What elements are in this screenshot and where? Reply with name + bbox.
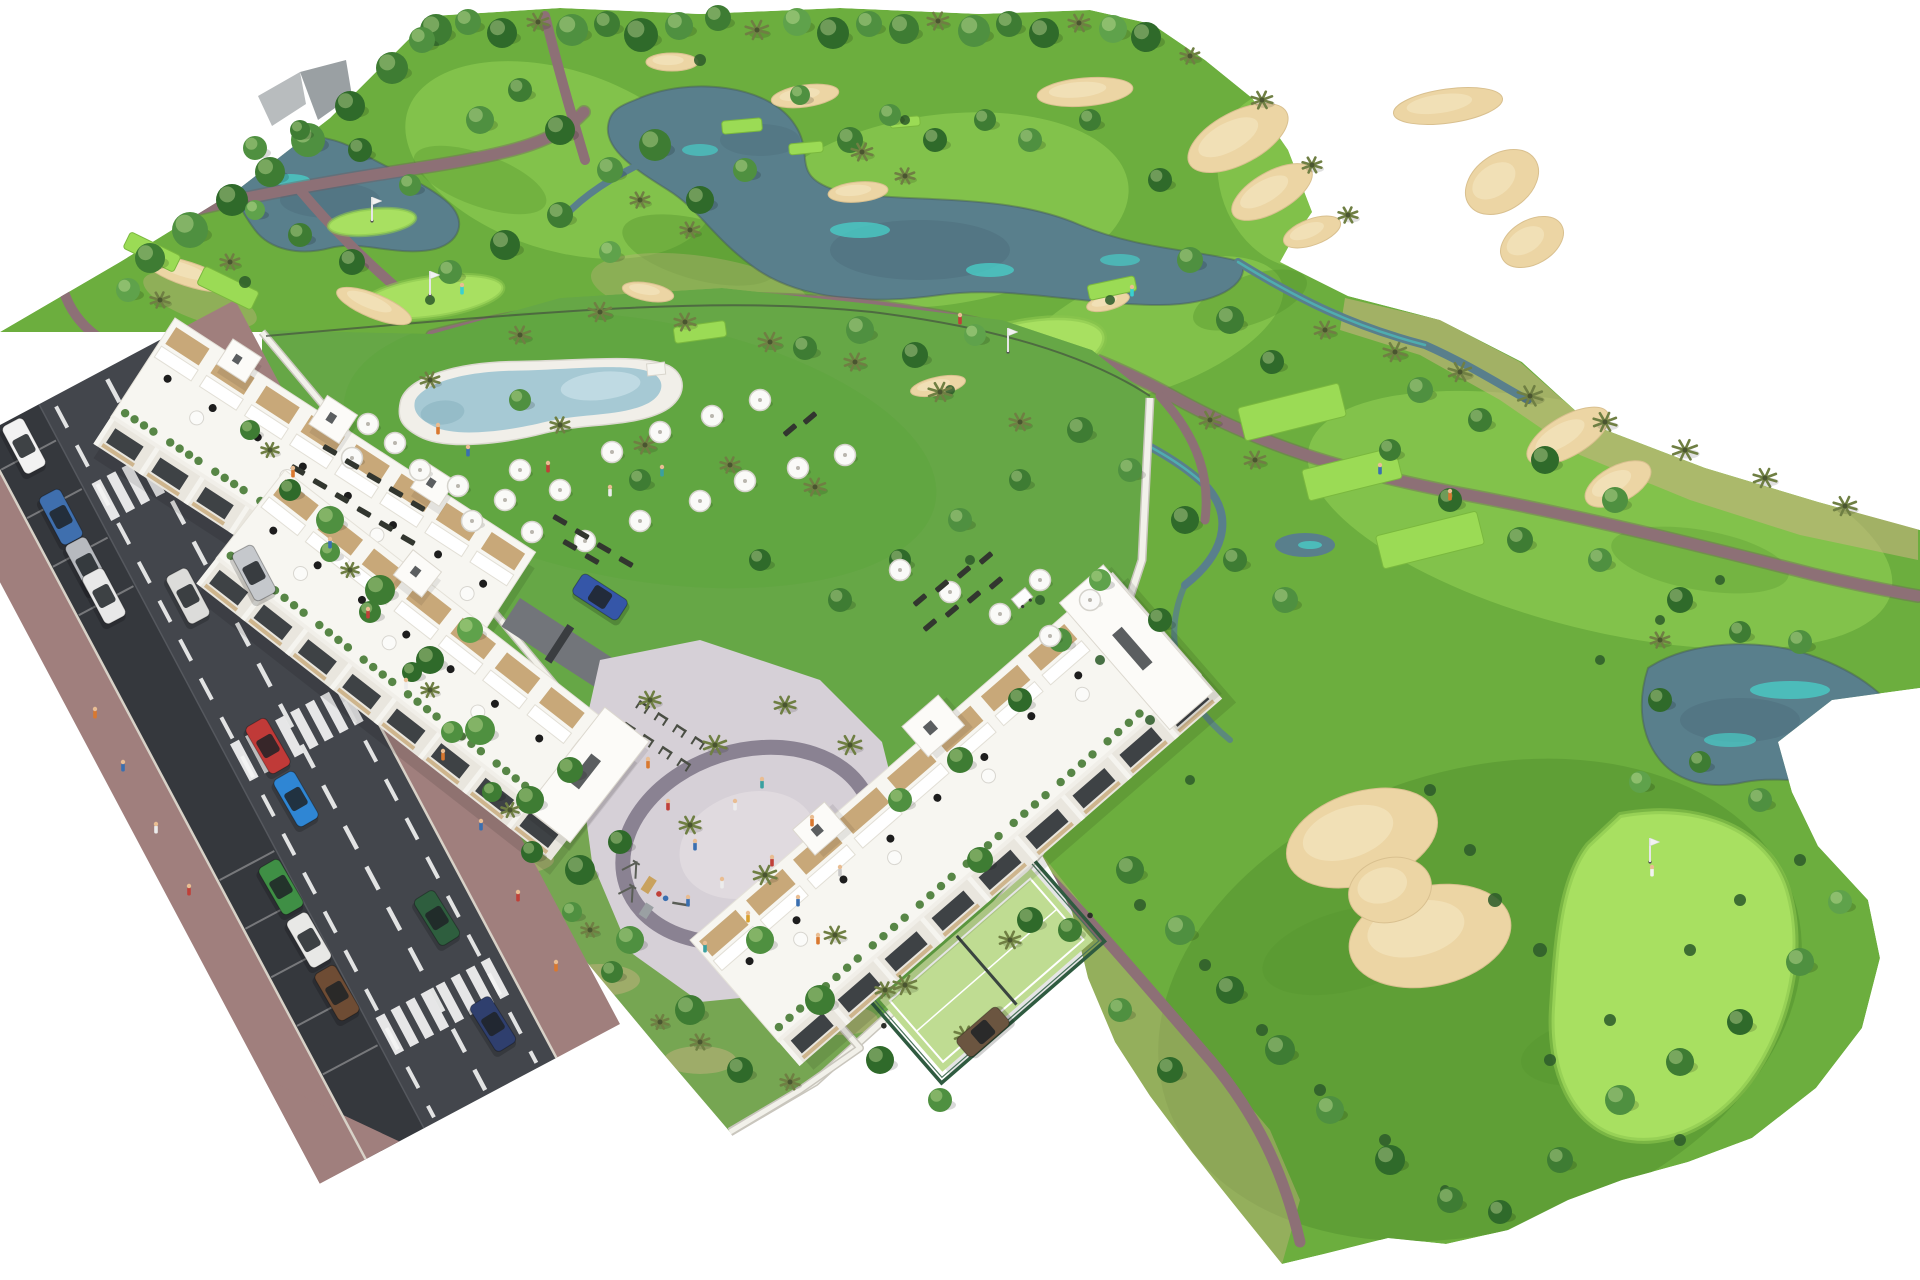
bush [965,555,975,565]
person [1130,285,1134,297]
person [703,941,707,953]
person [733,799,737,811]
bush [1604,1014,1616,1026]
bush [1674,1134,1686,1146]
aerial-render-stage [0,0,1920,1280]
tree [243,136,271,160]
person [328,537,332,549]
person [746,911,750,923]
person [93,707,97,719]
tree [705,5,735,31]
bush [1715,575,1725,585]
sand-bunker [1391,82,1505,131]
bush [1684,944,1696,956]
person [479,819,483,831]
bush [1424,784,1436,796]
person [546,461,550,473]
person [187,884,191,896]
tree [455,9,485,35]
person [816,933,820,945]
sand-bunker [1453,136,1551,228]
bush [1655,615,1665,625]
person [1650,865,1654,877]
person [436,423,440,435]
person [646,757,650,769]
person [404,678,408,690]
bush [1035,595,1045,605]
person [693,839,697,851]
bush [1199,959,1211,971]
person [608,485,612,497]
person [1378,463,1382,475]
bush [694,54,706,66]
golf-resort-aerial-render [0,0,1920,1280]
tree [928,1088,956,1112]
person [466,445,470,457]
bush [1533,943,1547,957]
bush [1256,1024,1268,1036]
bush [1544,1054,1556,1066]
bush [1095,655,1105,665]
person [770,855,774,867]
person [810,815,814,827]
tree [866,1046,898,1074]
sand-bunker [1492,206,1573,278]
person [516,890,520,902]
bush [1595,655,1605,665]
person [154,822,158,834]
bush [1134,899,1146,911]
bush [1105,295,1115,305]
bush [1185,775,1195,785]
bush [1145,715,1155,725]
person [291,466,295,478]
person [838,865,842,877]
bush [1794,854,1806,866]
person [666,799,670,811]
person [796,895,800,907]
person [686,895,690,907]
person [121,760,125,772]
tee-box [789,141,824,155]
bush [1464,844,1476,856]
bush [1314,1084,1326,1096]
palm-tree [1339,208,1360,223]
person [554,960,558,972]
person [720,877,724,889]
person [958,313,962,325]
bush [1734,894,1746,906]
person [441,749,445,761]
person [760,777,764,789]
palm-tree [1673,440,1700,460]
bush [1379,1134,1391,1146]
bush [239,276,251,288]
sand-bunker [646,53,698,71]
person [660,465,664,477]
bush [1488,893,1502,907]
tee-box [722,118,763,134]
person [366,607,370,619]
person [1448,489,1452,501]
person [460,283,464,295]
